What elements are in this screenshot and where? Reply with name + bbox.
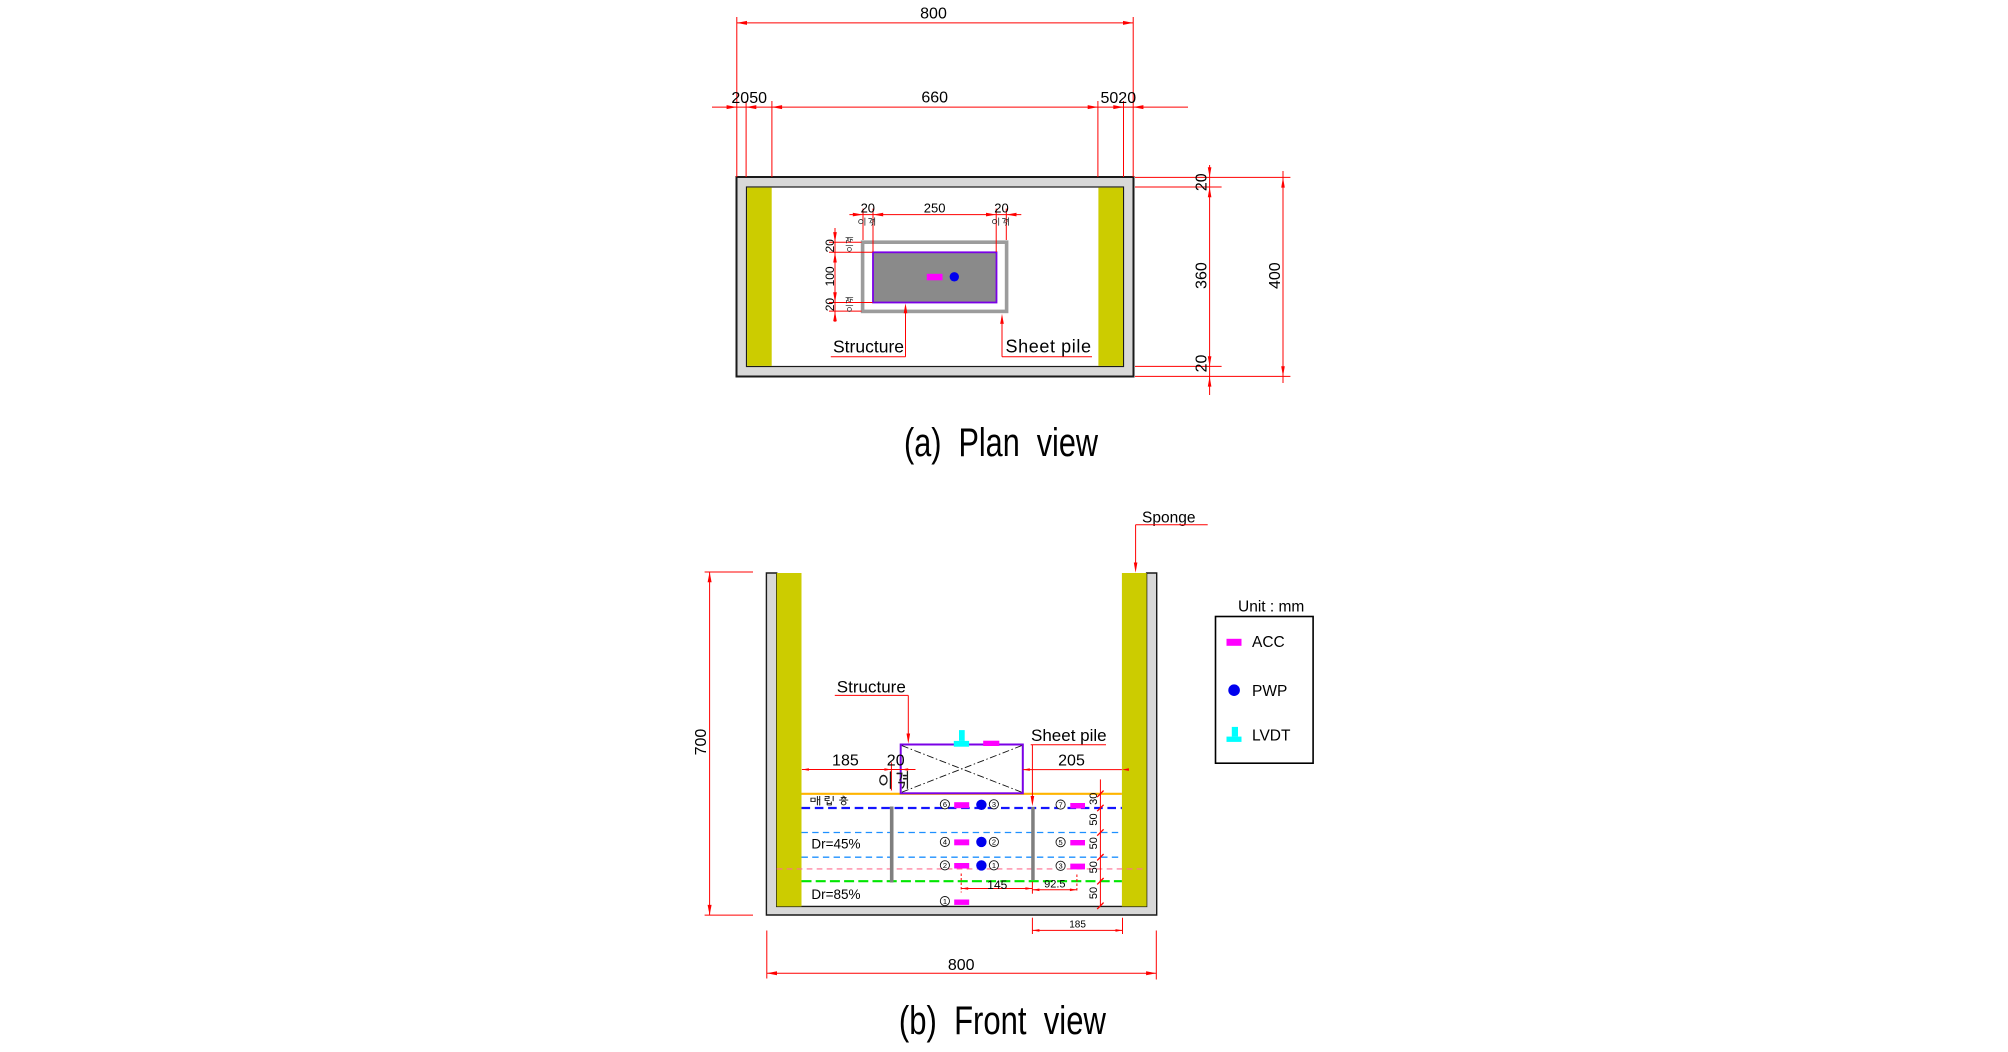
svg-text:3: 3 bbox=[992, 800, 996, 809]
svg-text:20: 20 bbox=[823, 298, 837, 312]
svg-text:50: 50 bbox=[1088, 887, 1100, 899]
svg-text:250: 250 bbox=[924, 200, 946, 215]
svg-text:50: 50 bbox=[1088, 813, 1100, 825]
svg-text:20: 20 bbox=[994, 200, 1008, 215]
svg-text:20: 20 bbox=[1194, 173, 1211, 191]
svg-text:20: 20 bbox=[1194, 355, 1211, 373]
svg-text:Sponge: Sponge bbox=[1142, 509, 1195, 526]
svg-text:700: 700 bbox=[693, 729, 710, 756]
svg-text:2: 2 bbox=[943, 861, 947, 870]
svg-text:(b) Front view: (b) Front view bbox=[899, 999, 1106, 1043]
svg-text:5: 5 bbox=[1059, 838, 1063, 847]
svg-text:Dr=45%: Dr=45% bbox=[811, 836, 860, 851]
svg-text:(a) Plan view: (a) Plan view bbox=[904, 421, 1098, 465]
svg-text:Dr=85%: Dr=85% bbox=[811, 887, 860, 902]
svg-text:30: 30 bbox=[1088, 793, 1100, 805]
svg-text:50: 50 bbox=[1088, 861, 1100, 873]
svg-text:185: 185 bbox=[1069, 919, 1086, 930]
svg-text:LVDT: LVDT bbox=[1252, 727, 1291, 744]
svg-text:20: 20 bbox=[823, 239, 837, 253]
svg-text:7: 7 bbox=[1059, 800, 1063, 809]
svg-text:145: 145 bbox=[987, 878, 1007, 892]
svg-text:1: 1 bbox=[992, 861, 996, 870]
svg-text:100: 100 bbox=[823, 266, 837, 286]
svg-text:4: 4 bbox=[943, 838, 947, 847]
svg-text:6: 6 bbox=[943, 800, 947, 809]
svg-text:800: 800 bbox=[948, 957, 975, 974]
svg-text:400: 400 bbox=[1267, 262, 1284, 289]
svg-text:3: 3 bbox=[1059, 862, 1063, 871]
svg-text:185: 185 bbox=[832, 752, 859, 769]
svg-text:2: 2 bbox=[992, 838, 996, 847]
svg-text:20: 20 bbox=[861, 200, 875, 215]
svg-text:1: 1 bbox=[943, 897, 947, 906]
svg-text:50: 50 bbox=[1088, 837, 1100, 849]
svg-text:ACC: ACC bbox=[1252, 634, 1285, 651]
svg-text:Structure: Structure bbox=[833, 336, 904, 356]
svg-text:Structure: Structure bbox=[837, 678, 906, 697]
svg-text:Sheet pile: Sheet pile bbox=[1006, 336, 1092, 356]
svg-text:Sheet pile: Sheet pile bbox=[1031, 726, 1107, 745]
svg-text:92.5: 92.5 bbox=[1044, 879, 1065, 891]
svg-text:PWP: PWP bbox=[1252, 683, 1287, 700]
svg-text:20: 20 bbox=[887, 752, 905, 769]
svg-text:5020: 5020 bbox=[1101, 90, 1137, 107]
svg-text:660: 660 bbox=[921, 90, 948, 107]
svg-text:205: 205 bbox=[1058, 752, 1085, 769]
svg-text:2050: 2050 bbox=[731, 90, 767, 107]
svg-text:360: 360 bbox=[1194, 262, 1211, 289]
svg-text:Unit : mm: Unit : mm bbox=[1238, 599, 1304, 616]
svg-text:800: 800 bbox=[920, 6, 947, 23]
